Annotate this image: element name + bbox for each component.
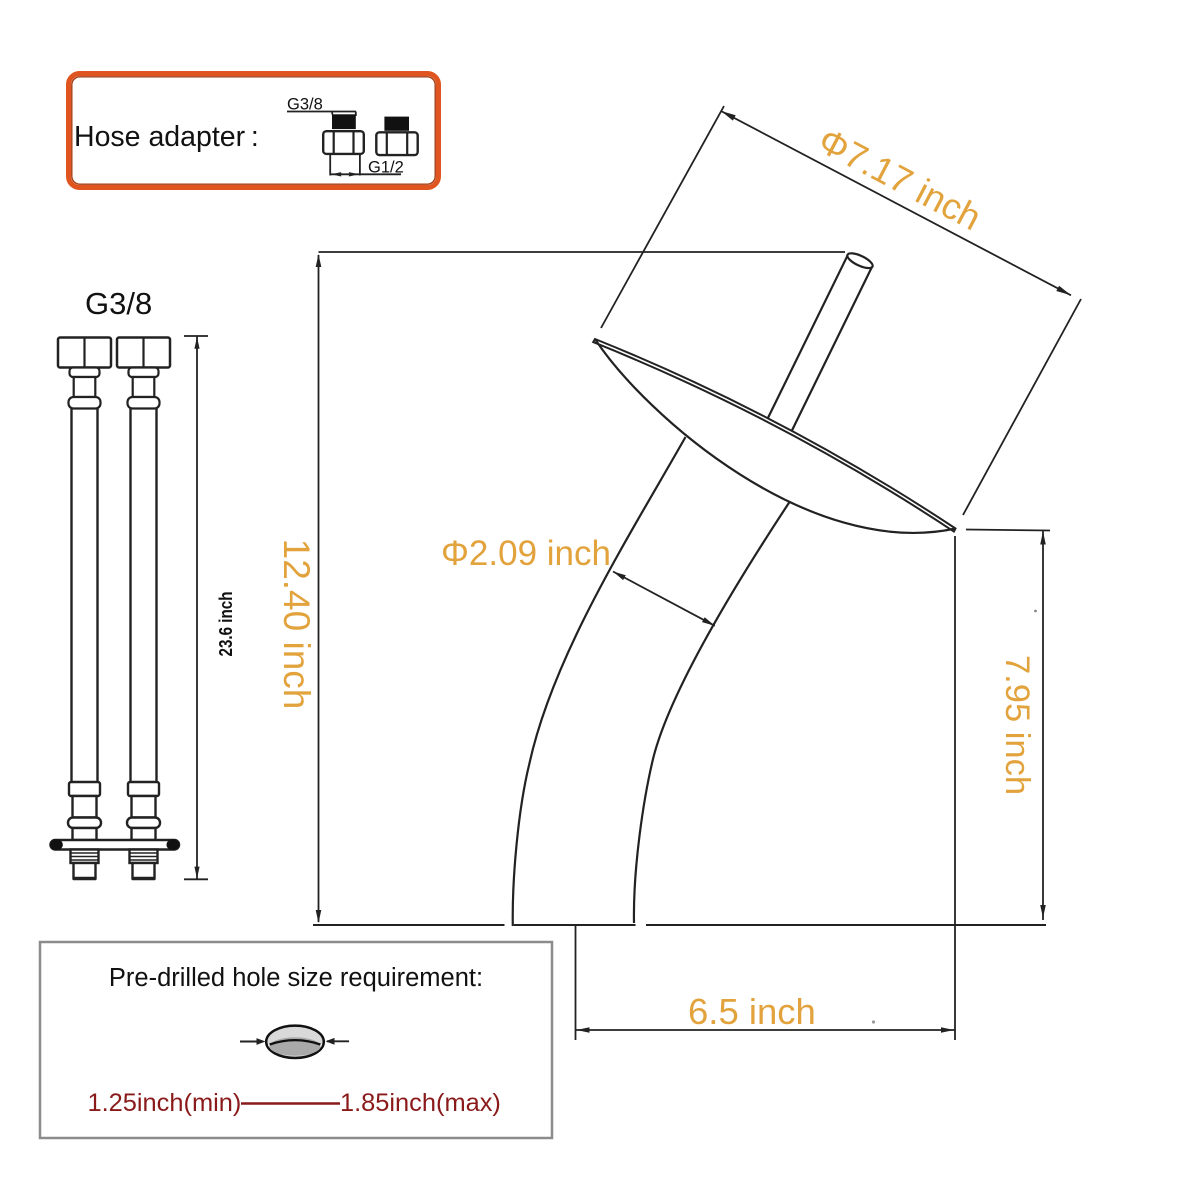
svg-text:Hose adapter :: Hose adapter : [74, 121, 259, 153]
svg-text:6.5 inch: 6.5 inch [688, 991, 816, 1032]
svg-text:G3/8: G3/8 [85, 286, 152, 321]
svg-text:Pre-drilled hole size requirem: Pre-drilled hole size requirement: [109, 964, 483, 992]
svg-text:G1/2: G1/2 [368, 159, 404, 177]
svg-text:12.40 inch: 12.40 inch [276, 539, 317, 710]
svg-text:1.85inch(max): 1.85inch(max) [340, 1089, 501, 1117]
svg-text:23.6 inch: 23.6 inch [216, 592, 236, 657]
svg-text:1.25inch(min): 1.25inch(min) [88, 1089, 242, 1117]
svg-text:7.95 inch: 7.95 inch [998, 655, 1036, 795]
svg-text:Φ7.17 inch: Φ7.17 inch [812, 120, 988, 239]
svg-text:Φ2.09 inch: Φ2.09 inch [441, 534, 611, 573]
